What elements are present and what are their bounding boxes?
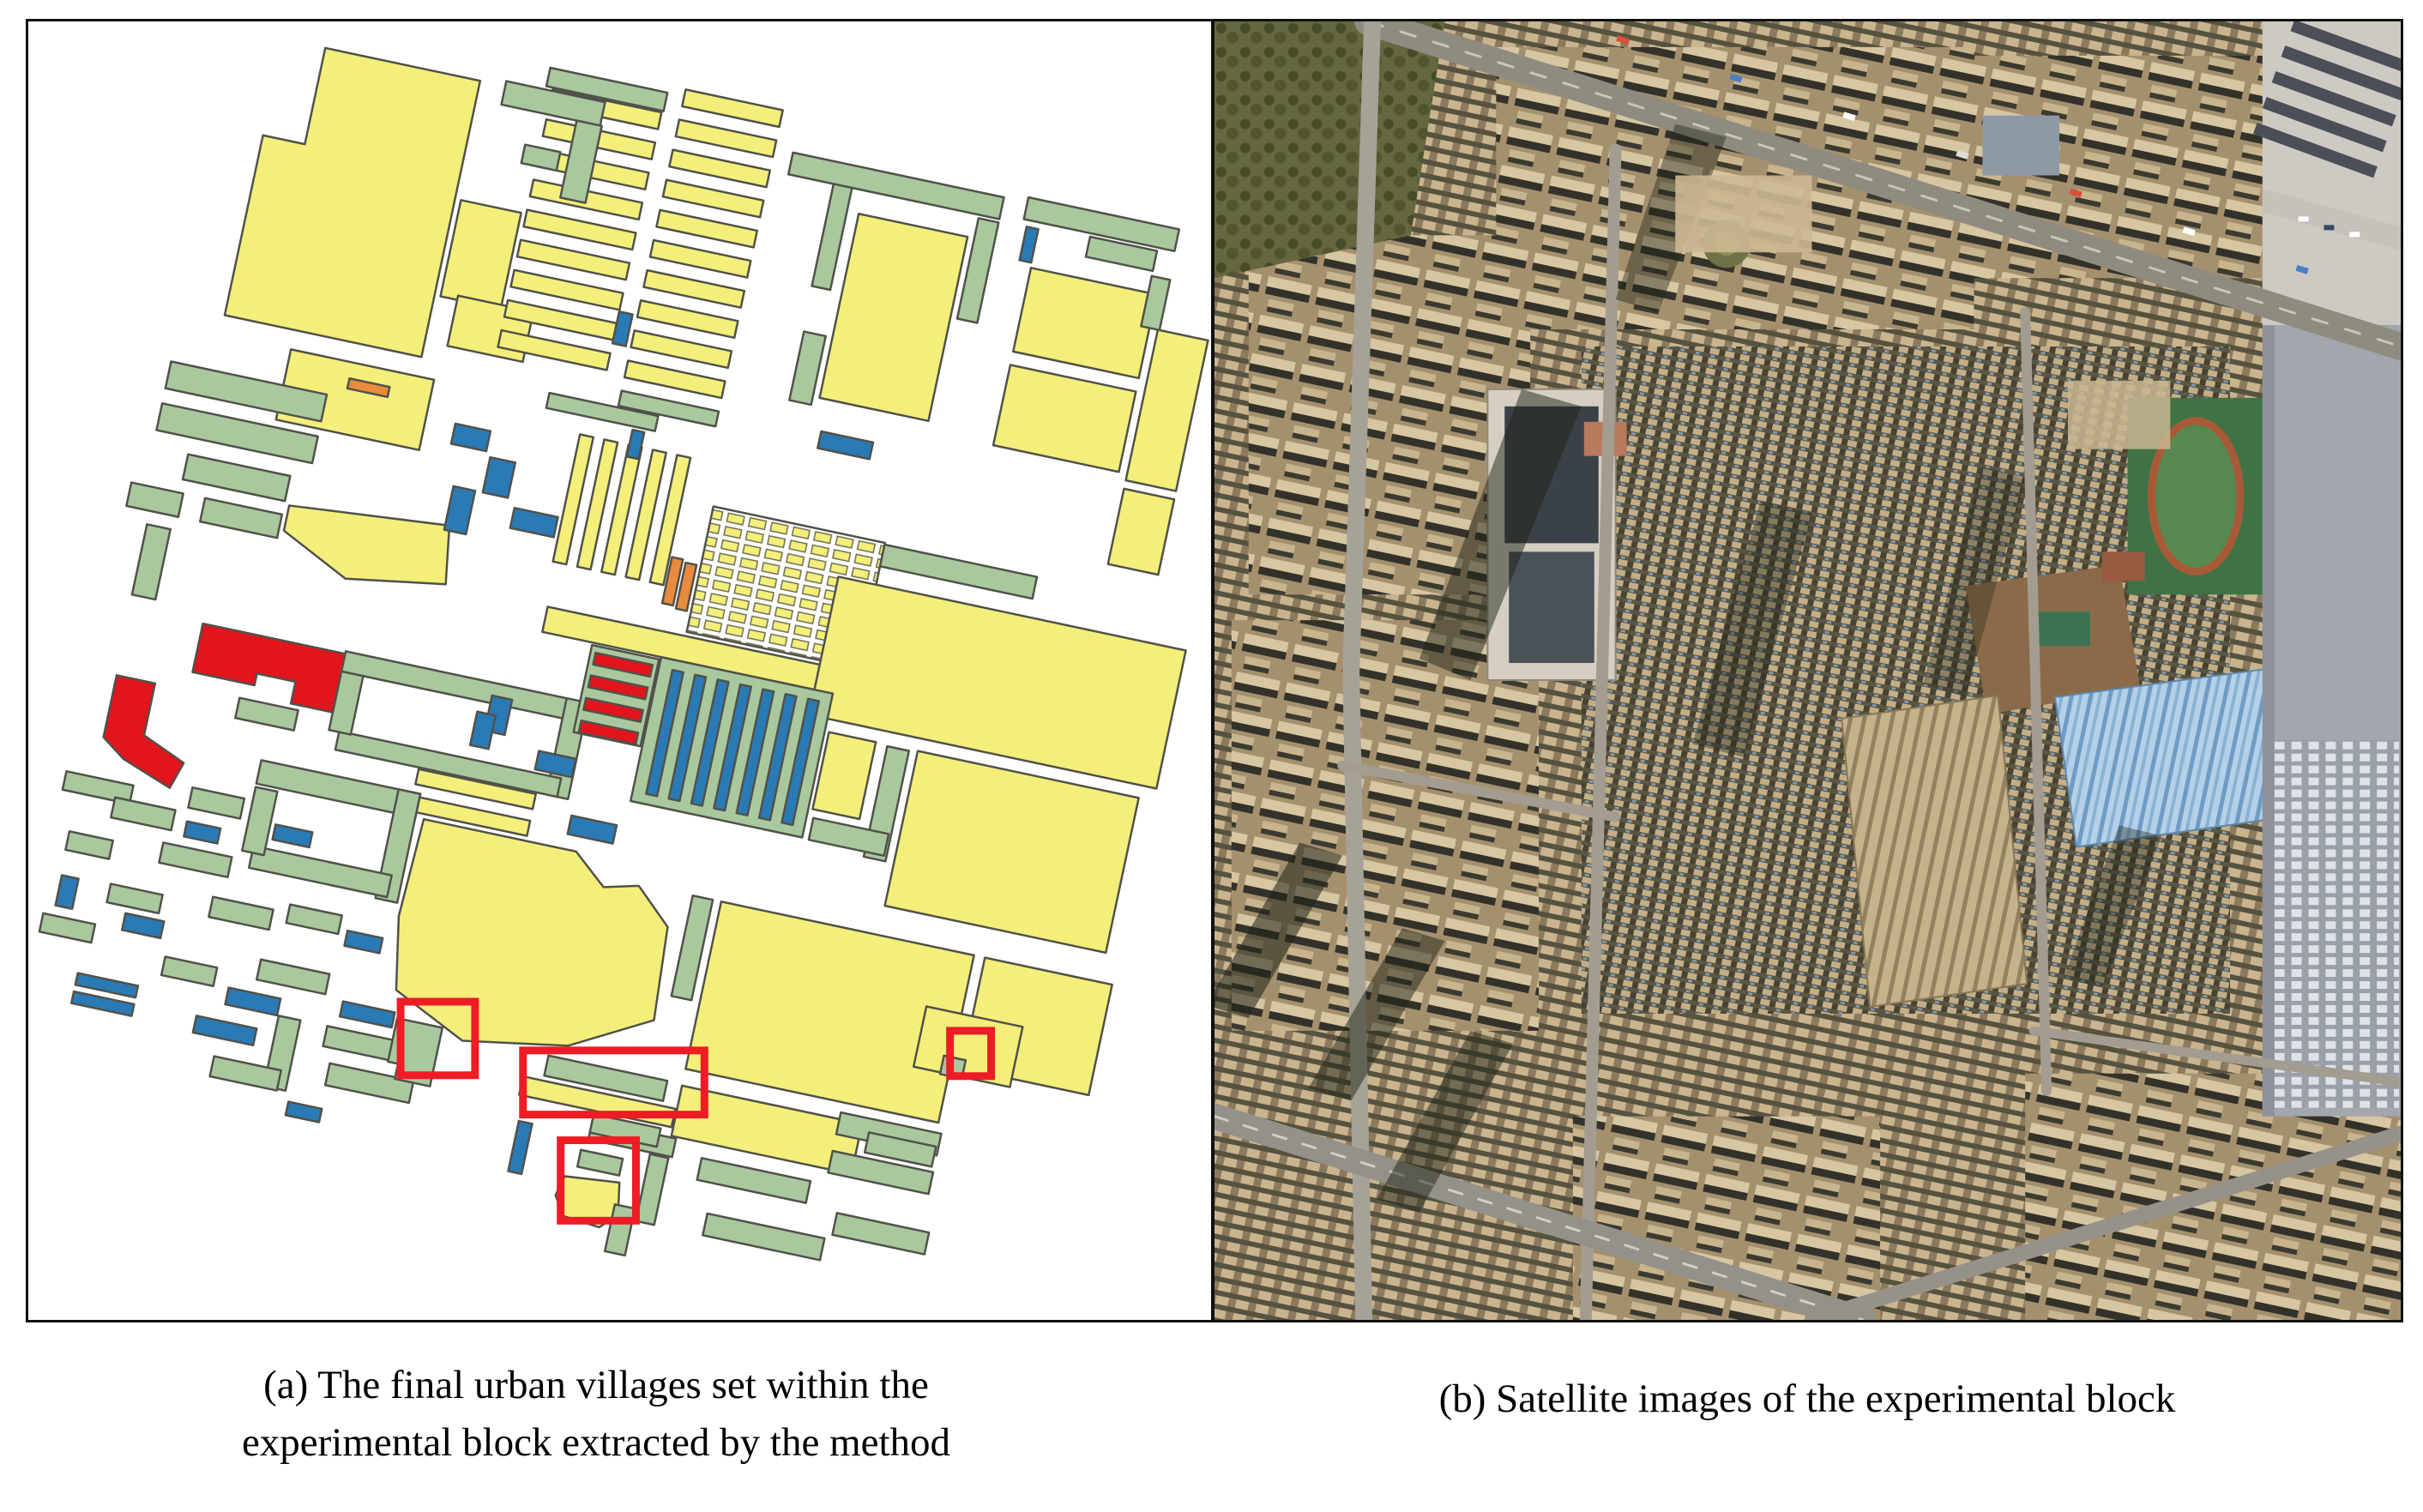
caption-panel-a: (a) The final urban villages set within …: [26, 1357, 1166, 1471]
map-content: [28, 21, 1211, 1320]
caption-a-line1: (a) The final urban villages set within …: [263, 1363, 929, 1407]
image-tile-right: [2263, 325, 2401, 1117]
figure-page: (a) The final urban villages set within …: [0, 0, 2423, 1512]
blue-gray-building: [1982, 116, 2059, 176]
plaza-light-2: [2068, 381, 2170, 449]
panel-a-map: [26, 19, 1214, 1322]
plaza-light: [1675, 176, 1811, 253]
satellite-image-svg: [1215, 21, 2401, 1320]
urban-village-map-svg: [28, 21, 1211, 1320]
caption-panel-b: (b) Satellite images of the experimental…: [1211, 1370, 2403, 1428]
caption-a-line2: experimental block extracted by the meth…: [242, 1420, 950, 1465]
image-tile-top-right: [2253, 21, 2401, 325]
panel-b-satellite: [1211, 19, 2403, 1322]
construction-tarp: [2034, 611, 2090, 646]
factory-ribbed-roof: [1841, 696, 2027, 1007]
